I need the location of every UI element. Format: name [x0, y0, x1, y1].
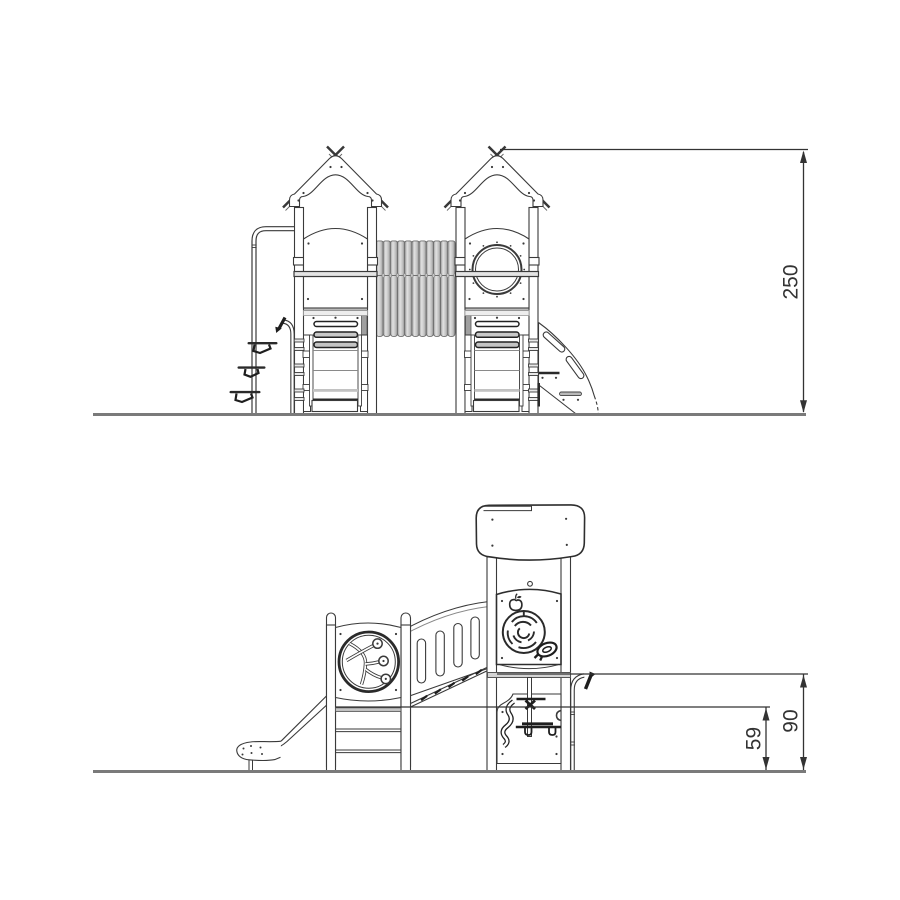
svg-text:90: 90: [780, 709, 803, 732]
svg-text:250: 250: [780, 264, 803, 299]
svg-text:59: 59: [743, 727, 766, 750]
